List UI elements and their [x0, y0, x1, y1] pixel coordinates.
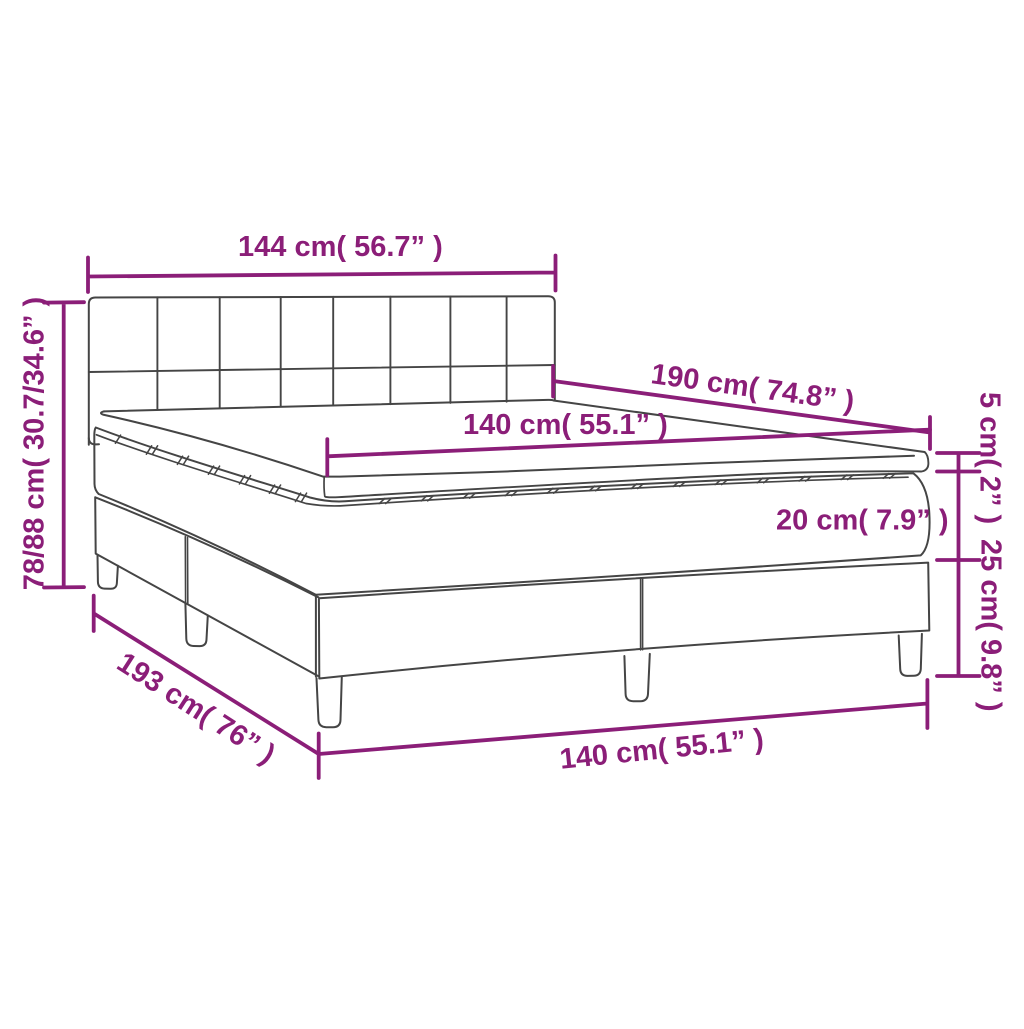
svg-text:140 cm( 55.1” ): 140 cm( 55.1” )	[463, 409, 668, 441]
svg-text:25 cm( 9.8” ): 25 cm( 9.8” )	[975, 539, 1007, 711]
svg-text:5 cm( 2” ): 5 cm( 2” )	[974, 392, 1006, 524]
svg-text:20 cm( 7.9” ): 20 cm( 7.9” )	[776, 505, 948, 537]
svg-text:78/88 cm( 30.7/34.6” ): 78/88 cm( 30.7/34.6” )	[19, 297, 51, 590]
svg-text:144 cm( 56.7” ): 144 cm( 56.7” )	[238, 231, 443, 263]
